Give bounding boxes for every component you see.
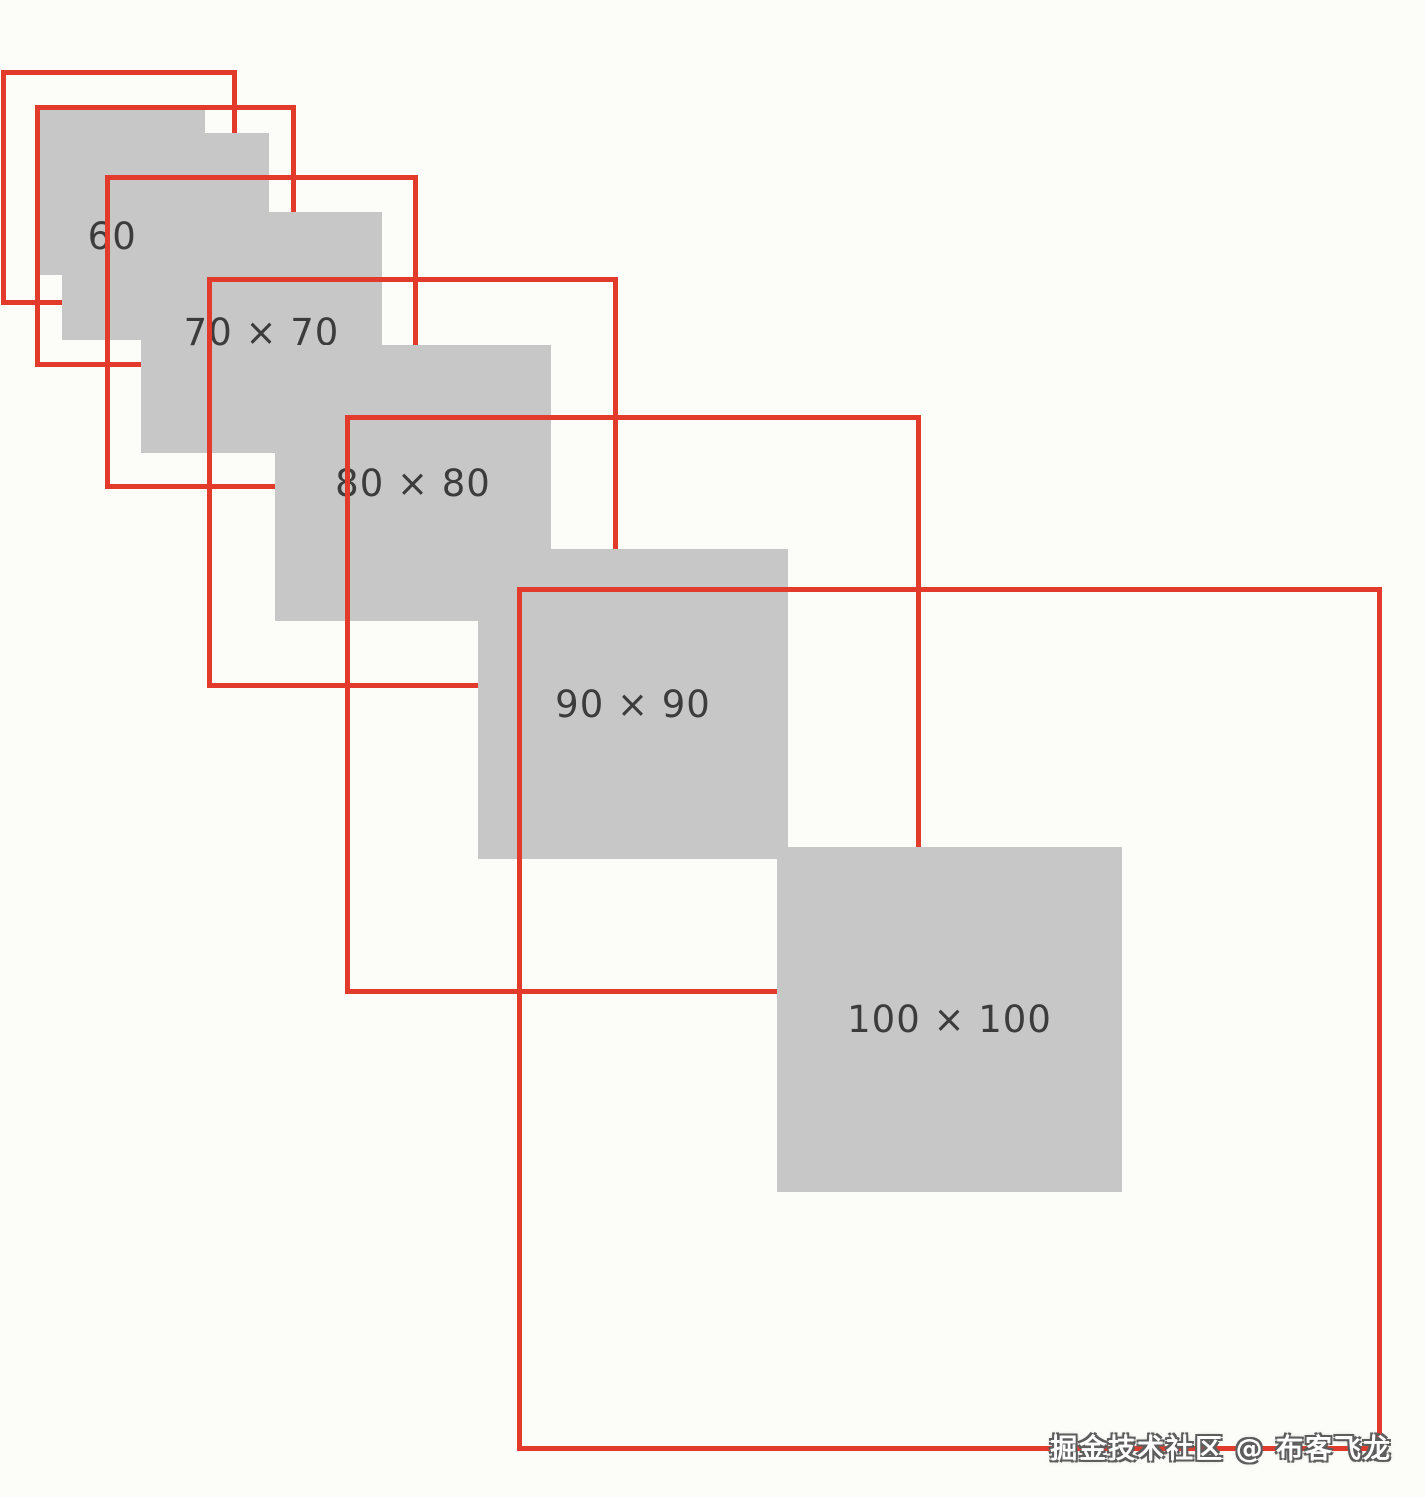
figure-canvas: 60 × 6070 × 7080 × 8090 × 90100 × 100 掘金… <box>0 0 1425 1497</box>
gray-square-100: 100 × 100 <box>777 847 1122 1192</box>
size-label-100: 100 × 100 <box>847 998 1052 1041</box>
watermark: 掘金技术社区 @ 布客飞龙 <box>1050 1427 1392 1466</box>
